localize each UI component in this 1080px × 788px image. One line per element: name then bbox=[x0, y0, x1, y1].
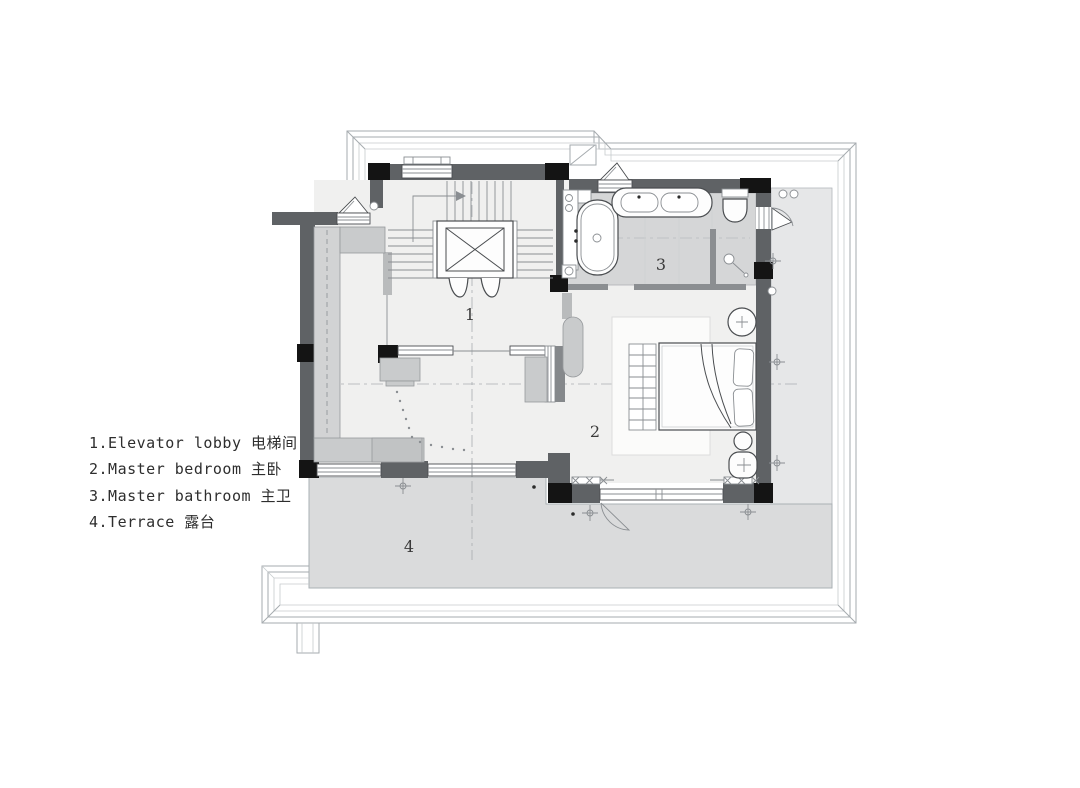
tv-cabinet bbox=[563, 317, 583, 377]
cabinet bbox=[340, 227, 385, 253]
chimney bbox=[297, 623, 319, 653]
floor-plan-page: 1.Elevator lobby 电梯间 2.Master bedroom 主卧… bbox=[0, 0, 1080, 788]
pillow bbox=[733, 349, 754, 387]
roof-strip-right bbox=[771, 188, 832, 506]
vanity-double-sink bbox=[612, 188, 712, 217]
parapet-step bbox=[570, 145, 596, 165]
room-label-master-bedroom: 2 bbox=[590, 422, 600, 441]
bathtub bbox=[574, 200, 618, 275]
floor-plan-drawing: 1 2 3 4 bbox=[0, 0, 1080, 788]
cabinet bbox=[525, 357, 547, 402]
pillow bbox=[733, 389, 754, 427]
bed bbox=[659, 343, 756, 430]
room-label-terrace: 4 bbox=[404, 537, 414, 556]
half-wall-rail bbox=[398, 346, 453, 355]
room-label-elevator-lobby: 1 bbox=[465, 305, 475, 324]
room-label-master-bathroom: 3 bbox=[656, 255, 666, 274]
bedroom-sliding-door bbox=[600, 489, 723, 500]
toilet bbox=[722, 189, 748, 222]
cabinet bbox=[380, 358, 420, 381]
elevator-shaft bbox=[433, 221, 517, 278]
roof-vent-icon bbox=[790, 190, 798, 198]
floor-drain bbox=[562, 265, 576, 278]
stool bbox=[734, 432, 752, 450]
corridor-window bbox=[317, 464, 381, 476]
west-wing-wall bbox=[272, 212, 338, 225]
pouf bbox=[729, 452, 757, 478]
half-wall-rail bbox=[510, 346, 545, 355]
shelf-unit bbox=[629, 344, 656, 430]
round-side-table bbox=[728, 308, 756, 336]
stair-hall-window bbox=[402, 157, 452, 178]
roof-vent-icon bbox=[779, 190, 787, 198]
shower-partition bbox=[710, 229, 716, 290]
bedroom bbox=[612, 308, 757, 478]
